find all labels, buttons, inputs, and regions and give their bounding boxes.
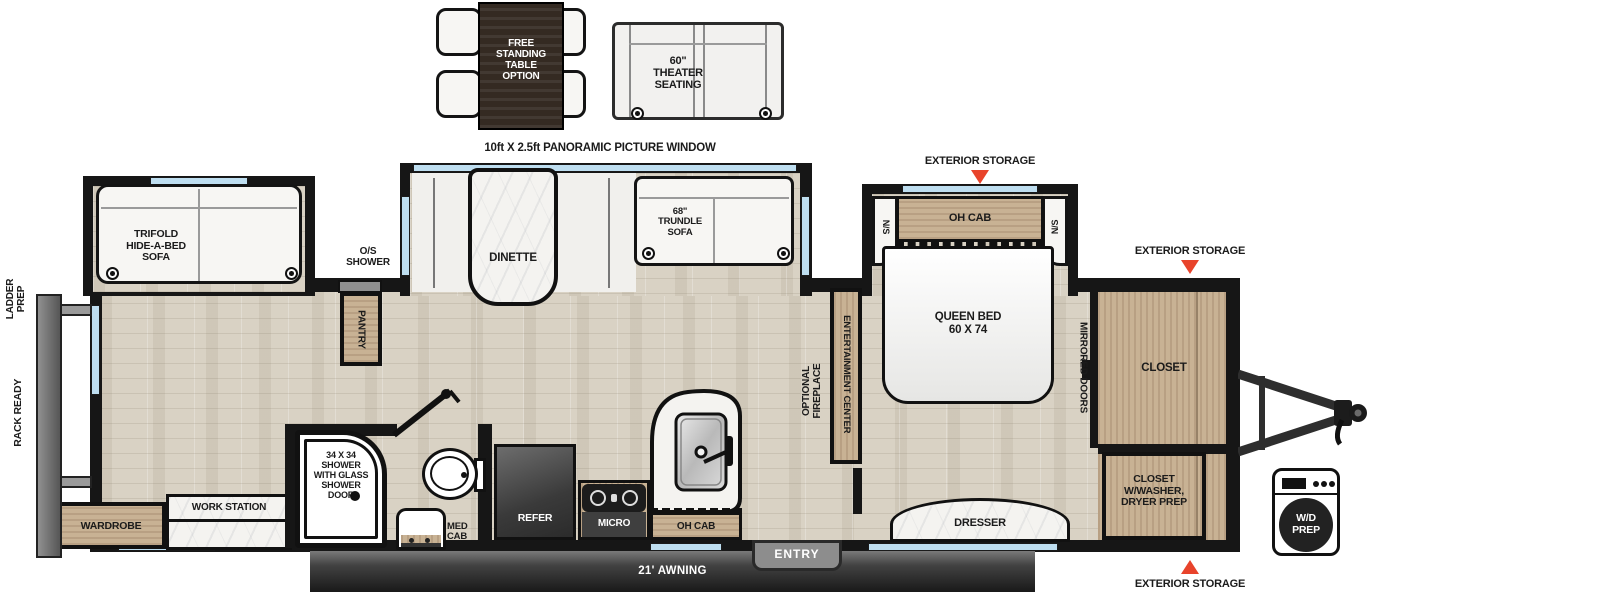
dining-chair <box>436 8 482 56</box>
cupholder <box>631 107 644 120</box>
theater-seating-label: 60" THEATER SEATING <box>623 55 733 91</box>
washer-panel-line <box>1275 493 1337 495</box>
exterior-storage-top-marker <box>971 170 989 184</box>
bench-divider <box>433 178 435 288</box>
trifold-sofa-label: TRIFOLD HIDE-A-BED SOFA <box>113 229 199 264</box>
kitchen-counter <box>640 382 750 516</box>
rack-mount <box>60 476 92 488</box>
trundle-sofa-label: 68" TRUNDLE SOFA <box>645 207 715 238</box>
washer-dryer-closet-label: CLOSET W/WASHER, DRYER PREP <box>1104 474 1204 509</box>
free-standing-table: FREE STANDING TABLE OPTION <box>478 2 564 130</box>
washer-panel <box>1282 478 1306 489</box>
bedroom-oh-cab-label: OH CAB <box>899 212 1041 224</box>
pantry-label: PANTRY <box>356 300 367 360</box>
floorplan-canvas: FREE STANDING TABLE OPTION 60" THEATER S… <box>0 0 1600 602</box>
med-cab-label: MED CAB <box>447 522 483 543</box>
exterior-storage-front-label: EXTERIOR STORAGE <box>1120 245 1260 257</box>
dresser-label: DRESSER <box>893 517 1067 529</box>
bedroom-half-wall <box>853 468 862 514</box>
window <box>868 543 1058 551</box>
free-standing-table-label: FREE STANDING TABLE OPTION <box>480 38 562 82</box>
sofa-speaker <box>642 247 655 260</box>
toilet-drain <box>461 472 467 478</box>
washer-dryer-icon: W/D PREP <box>1272 468 1340 556</box>
shower: 34 X 34 SHOWER WITH GLASS SHOWER DOOR <box>295 430 387 548</box>
slideout-window <box>902 185 1038 193</box>
exterior-storage-top-label: EXTERIOR STORAGE <box>910 155 1050 167</box>
closet-label: CLOSET <box>1128 362 1200 375</box>
dinette-table: DINETTE <box>468 168 558 306</box>
nightstand-right-label: N/S <box>1051 207 1061 247</box>
theater-armrest-line <box>765 25 767 117</box>
queen-bed: QUEEN BED 60 X 74 <box>882 246 1054 404</box>
kitchen-oh-cab-label: OH CAB <box>653 521 739 532</box>
entertainment-center-label: ENTERTAINMENT CENTER <box>841 299 851 449</box>
shower-label: 34 X 34 SHOWER WITH GLASS SHOWER DOOR <box>303 451 379 500</box>
rack-mount <box>60 304 92 316</box>
window <box>650 543 722 551</box>
cupholder <box>759 107 772 120</box>
kitchen-overhead-cabinet: OH CAB <box>650 512 742 540</box>
washer-knob <box>1313 481 1319 487</box>
rear-window <box>91 305 100 395</box>
work-station-divider <box>169 519 289 522</box>
burner <box>590 490 606 506</box>
entry-door: ENTRY <box>752 540 842 571</box>
sofa-speaker <box>285 267 298 280</box>
entry-label: ENTRY <box>755 548 839 561</box>
washer-drum: W/D PREP <box>1279 498 1333 552</box>
awning-bar: 21' AWNING <box>310 551 1035 592</box>
theater-seating: 60" THEATER SEATING <box>612 22 784 120</box>
bench-divider <box>608 178 610 288</box>
faucet-knob <box>409 538 414 543</box>
vanity-sink-base <box>401 535 441 547</box>
washer-knob <box>1329 481 1335 487</box>
washer-dryer-closet: CLOSET W/WASHER, DRYER PREP <box>1102 452 1206 540</box>
trundle-sofa: 68" TRUNDLE SOFA <box>634 176 794 266</box>
shower-head <box>350 491 360 501</box>
cooktop <box>582 484 646 512</box>
micro-label: MICRO <box>582 518 646 529</box>
refer-label: REFER <box>497 513 573 525</box>
nightstand-left-label: N/S <box>880 207 890 247</box>
work-station: WORK STATION <box>166 494 292 550</box>
wardrobe-label: WARDROBE <box>60 521 162 533</box>
rear-rack-bar <box>36 294 62 558</box>
work-station-label: WORK STATION <box>169 502 289 513</box>
sofa-speaker <box>777 247 790 260</box>
exterior-storage-bottom-label: EXTERIOR STORAGE <box>1120 578 1260 590</box>
queen-bed-label: QUEEN BED 60 X 74 <box>900 311 1036 336</box>
mirrored-door-wall <box>1090 292 1098 448</box>
exterior-storage-front-marker <box>1181 260 1199 274</box>
trifold-sofa: TRIFOLD HIDE-A-BED SOFA <box>96 184 302 284</box>
med-cab-vanity <box>396 508 446 550</box>
bath-door <box>380 375 470 445</box>
exterior-storage-bottom-marker <box>1181 560 1199 574</box>
dresser: DRESSER <box>890 498 1070 542</box>
panoramic-window-label: 10ft X 2.5ft PANORAMIC PICTURE WINDOW <box>430 142 770 155</box>
dining-chair <box>436 70 482 118</box>
toilet <box>422 448 478 500</box>
mirrored-doors-label: MIRRORED DOORS <box>1078 313 1089 423</box>
washer-knob <box>1321 481 1327 487</box>
slideout-window <box>801 196 810 276</box>
burner-center <box>611 494 617 502</box>
rack-ready-label: RACK READY <box>13 368 25 458</box>
outside-shower-label: O/S SHOWER <box>340 246 396 268</box>
sofa-speaker <box>106 267 119 280</box>
faucet-knob <box>425 538 430 543</box>
microwave: MICRO <box>582 512 646 537</box>
ladder-prep-label: LADDER PREP <box>5 267 27 331</box>
wd-prep-label: W/D PREP <box>1279 513 1333 536</box>
theater-headrest-line <box>629 43 767 45</box>
slideout-window <box>401 196 410 276</box>
dinette-label: DINETTE <box>472 252 554 265</box>
refrigerator: REFER <box>494 444 576 540</box>
optional-fireplace-label: OPTIONAL FIREPLACE <box>801 351 823 431</box>
burner <box>622 490 638 506</box>
hitch-tongue <box>1238 358 1374 468</box>
wardrobe: WARDROBE <box>56 502 166 549</box>
bedroom-overhead-cabinet: OH CAB <box>896 196 1044 242</box>
awning-label: 21' AWNING <box>310 565 1035 578</box>
